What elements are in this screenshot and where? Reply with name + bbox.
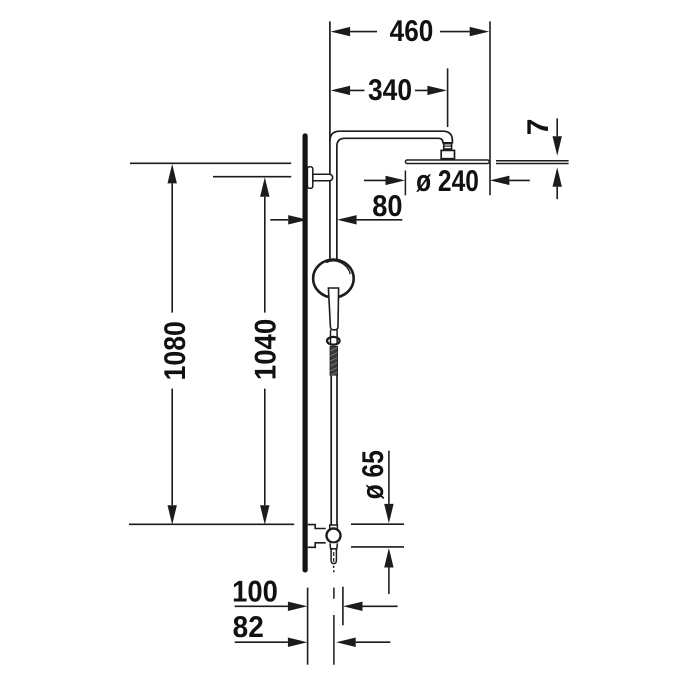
svg-text:80: 80 (372, 190, 402, 223)
svg-text:1040: 1040 (250, 319, 283, 380)
svg-text:ø 65: ø 65 (357, 450, 390, 499)
svg-text:ø 240: ø 240 (416, 165, 479, 198)
svg-text:7: 7 (522, 119, 555, 136)
svg-text:100: 100 (232, 575, 278, 608)
svg-text:1080: 1080 (159, 321, 192, 380)
svg-text:460: 460 (390, 15, 434, 48)
svg-text:340: 340 (368, 74, 412, 107)
svg-text:82: 82 (233, 611, 264, 644)
